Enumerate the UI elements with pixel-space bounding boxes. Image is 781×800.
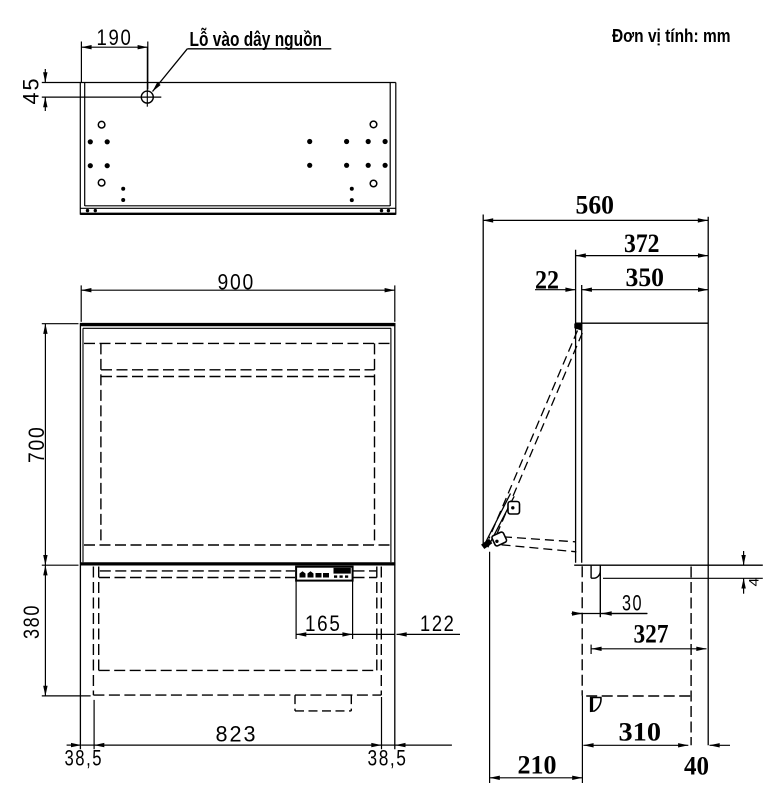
svg-text:700: 700	[24, 426, 49, 464]
svg-text:122: 122	[420, 611, 456, 636]
svg-text:900: 900	[218, 269, 256, 294]
svg-text:190: 190	[97, 25, 133, 50]
svg-text:40: 40	[684, 752, 709, 781]
svg-text:327: 327	[634, 620, 669, 649]
svg-text:4: 4	[746, 576, 762, 587]
svg-text:310: 310	[619, 718, 662, 747]
svg-text:30: 30	[622, 591, 643, 616]
svg-text:22: 22	[535, 266, 559, 295]
svg-text:38,5: 38,5	[368, 746, 408, 771]
svg-text:823: 823	[216, 722, 258, 747]
svg-text:210: 210	[518, 751, 557, 780]
svg-text:165: 165	[305, 611, 342, 636]
svg-text:45: 45	[19, 77, 44, 105]
svg-text:380: 380	[19, 604, 44, 639]
svg-text:Đơn vị tính: mm: Đơn vị tính: mm	[612, 26, 731, 46]
svg-text:Lỗ vào dây nguồn: Lỗ vào dây nguồn	[190, 27, 323, 51]
svg-text:372: 372	[624, 229, 660, 258]
svg-text:38,5: 38,5	[65, 746, 104, 771]
svg-text:560: 560	[576, 191, 615, 220]
svg-text:350: 350	[626, 263, 665, 292]
